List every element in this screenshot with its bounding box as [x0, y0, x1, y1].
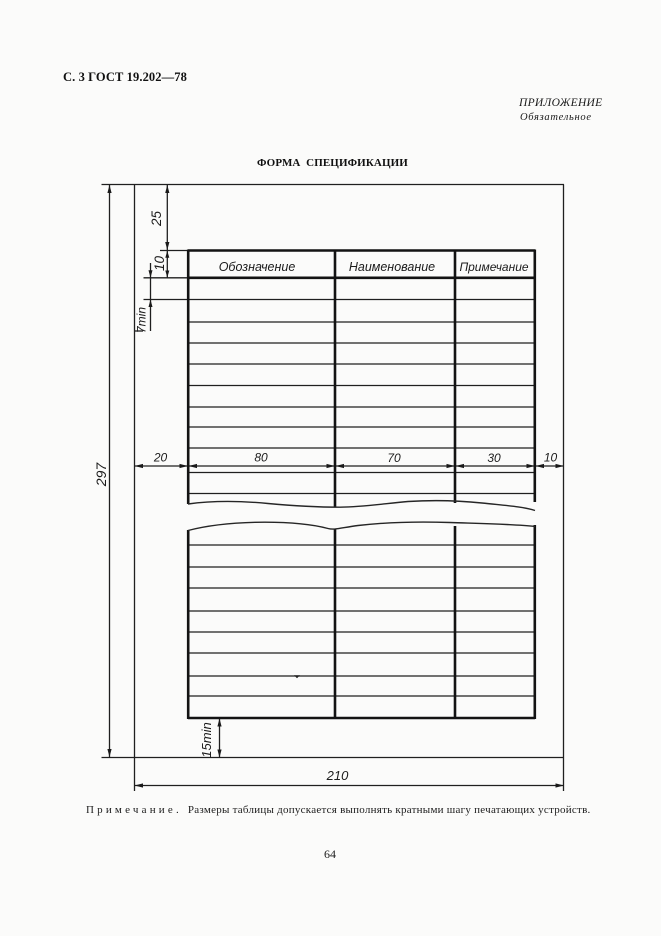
- svg-text:30: 30: [487, 451, 501, 465]
- svg-text:70: 70: [387, 451, 401, 465]
- svg-text:297: 297: [93, 462, 109, 488]
- svg-text:10: 10: [152, 256, 167, 272]
- svg-text:7min: 7min: [135, 307, 149, 333]
- svg-text:Обозначение: Обозначение: [219, 260, 296, 274]
- svg-text:210: 210: [326, 768, 349, 783]
- svg-text:10: 10: [544, 451, 558, 465]
- svg-text:15min: 15min: [199, 722, 214, 757]
- svg-text:Примечание: Примечание: [459, 260, 528, 274]
- svg-text:80: 80: [254, 451, 268, 465]
- svg-text:20: 20: [153, 451, 168, 465]
- svg-text:Наименование: Наименование: [349, 260, 435, 274]
- svg-text:25: 25: [149, 211, 164, 228]
